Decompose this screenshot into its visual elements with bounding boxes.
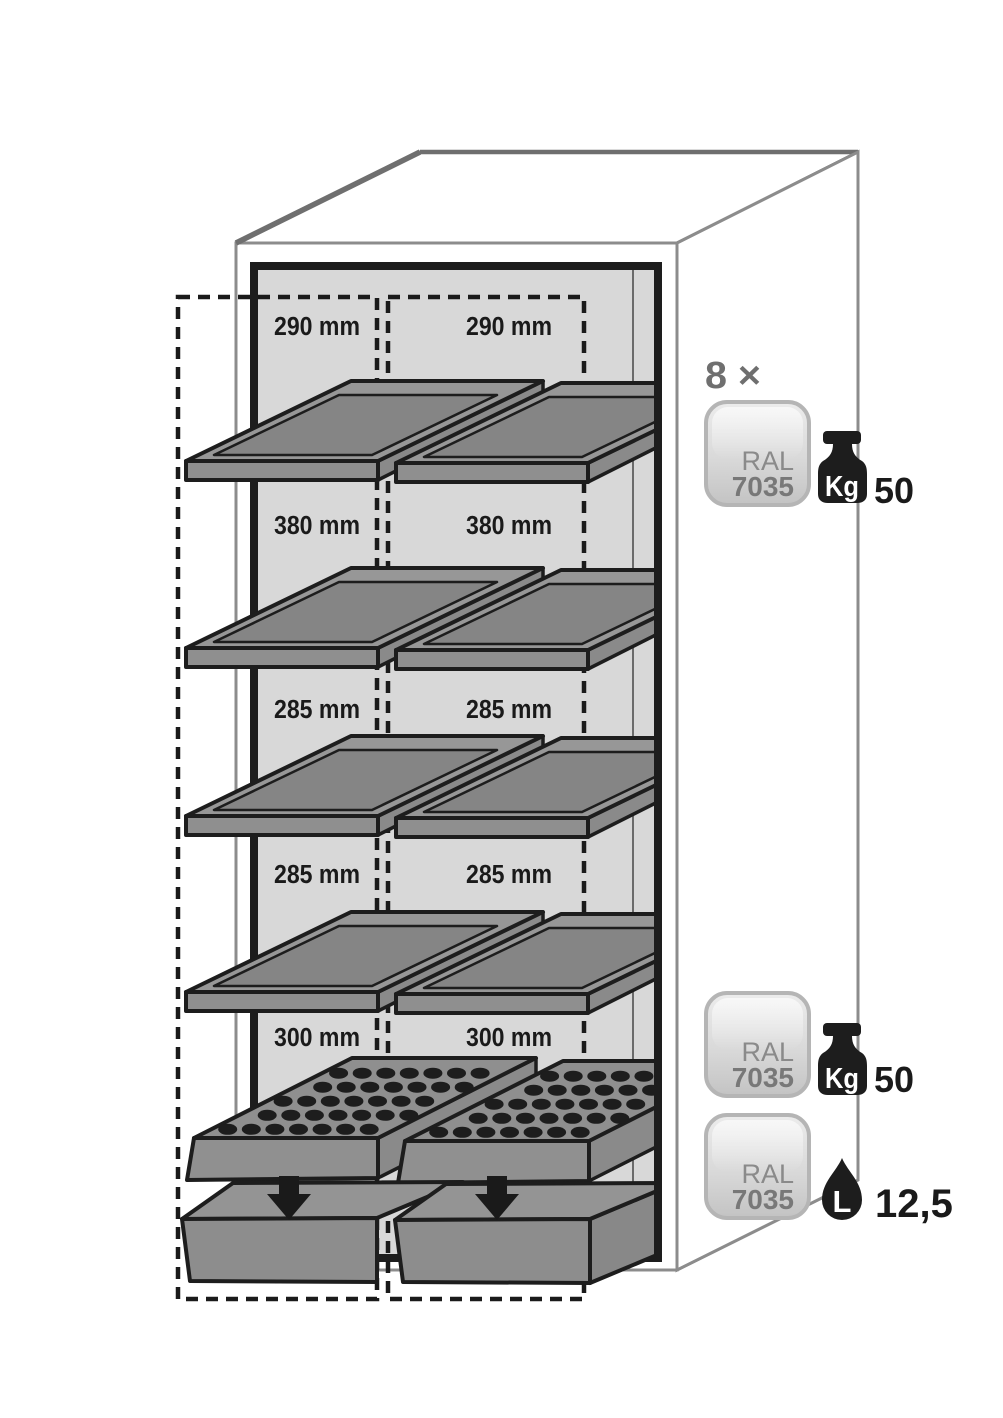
ral-7035-badge-shelf: RAL 7035 <box>706 402 809 505</box>
height-label-row2-right: 380 mm <box>466 512 552 540</box>
height-label-row1-left: 290 mm <box>274 313 360 341</box>
weight-unit-label: Kg <box>825 1063 859 1095</box>
ral-7035-badge-perforated: RAL 7035 <box>706 993 809 1096</box>
height-label-row1-right: 290 mm <box>466 313 552 341</box>
liter-value: 12,5 <box>875 1182 953 1226</box>
load-capacity-perforated: Kg 50 <box>818 1023 914 1100</box>
weight-value: 50 <box>874 470 914 511</box>
height-label-row5-right: 300 mm <box>466 1024 552 1052</box>
safety-cabinet-diagram: 290 mm 290 mm 380 mm 380 mm 285 mm 285 m… <box>0 0 1003 1418</box>
ral-code: 7035 <box>732 1062 794 1093</box>
load-capacity-shelf: Kg 50 <box>818 431 914 511</box>
sump-volume: L 12,5 <box>822 1158 953 1226</box>
height-label-row4-left: 285 mm <box>274 861 360 889</box>
ral-7035-badge-sump: RAL 7035 <box>706 1115 809 1218</box>
weight-value: 50 <box>874 1059 914 1100</box>
cabinet-diagram-page: 290 mm 290 mm 380 mm 380 mm 285 mm 285 m… <box>0 0 1003 1418</box>
liter-unit-label: L <box>833 1184 852 1219</box>
height-label-row3-right: 285 mm <box>466 696 552 724</box>
ral-code: 7035 <box>732 1184 794 1215</box>
ral-code: 7035 <box>732 471 794 502</box>
weight-unit-label: Kg <box>825 471 859 503</box>
shelf-quantity-label: 8 × <box>705 355 761 397</box>
height-label-row2-left: 380 mm <box>274 512 360 540</box>
cabinet-right-overlay <box>654 152 858 1270</box>
height-label-row5-left: 300 mm <box>274 1024 360 1052</box>
height-label-row3-left: 285 mm <box>274 696 360 724</box>
height-label-row4-right: 285 mm <box>466 861 552 889</box>
interior-frame-right-bar <box>654 262 662 1262</box>
